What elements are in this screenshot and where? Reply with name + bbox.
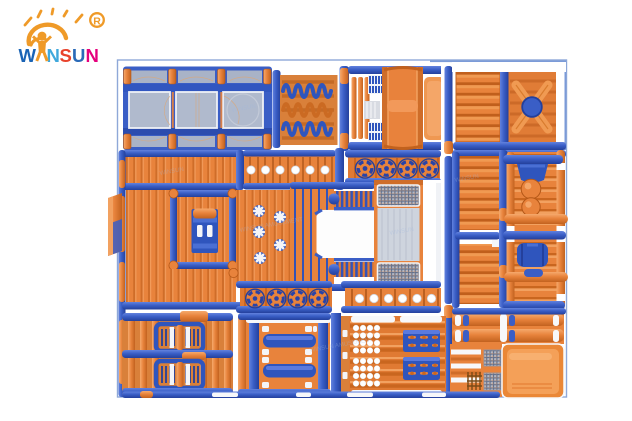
svg-text:S: S — [60, 45, 72, 66]
svg-text:R: R — [93, 16, 101, 28]
svg-text:N: N — [86, 45, 99, 66]
svg-text:U: U — [72, 45, 85, 66]
svg-text:N: N — [47, 45, 60, 66]
svg-text:W: W — [19, 45, 37, 66]
